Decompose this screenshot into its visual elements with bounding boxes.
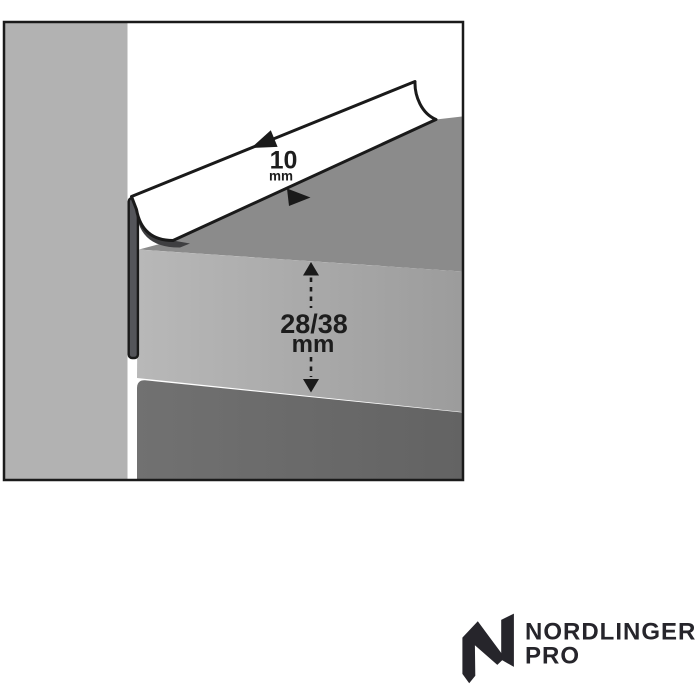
n-icon-left-diagonal-stroke	[462, 621, 504, 683]
brand-sub: PRO	[525, 643, 580, 670]
trim-wall-flange	[129, 198, 138, 358]
strip-dimension-arrow-upper	[251, 130, 278, 148]
product-illustration: 10 mm 28/38 mm NORDLINGER PRO	[0, 0, 700, 700]
wall-surface	[5, 23, 128, 479]
nordlinger-n-icon	[462, 614, 514, 684]
trim-installation-diagram: 10 mm 28/38 mm NORDLINGER PRO	[0, 0, 700, 700]
brand-name: NORDLINGER	[525, 619, 696, 646]
brand-logo: NORDLINGER PRO	[462, 614, 696, 684]
n-icon-right-stroke	[501, 614, 514, 667]
strip-dimension-unit: mm	[269, 169, 293, 184]
thickness-dimension-unit: mm	[292, 331, 335, 358]
